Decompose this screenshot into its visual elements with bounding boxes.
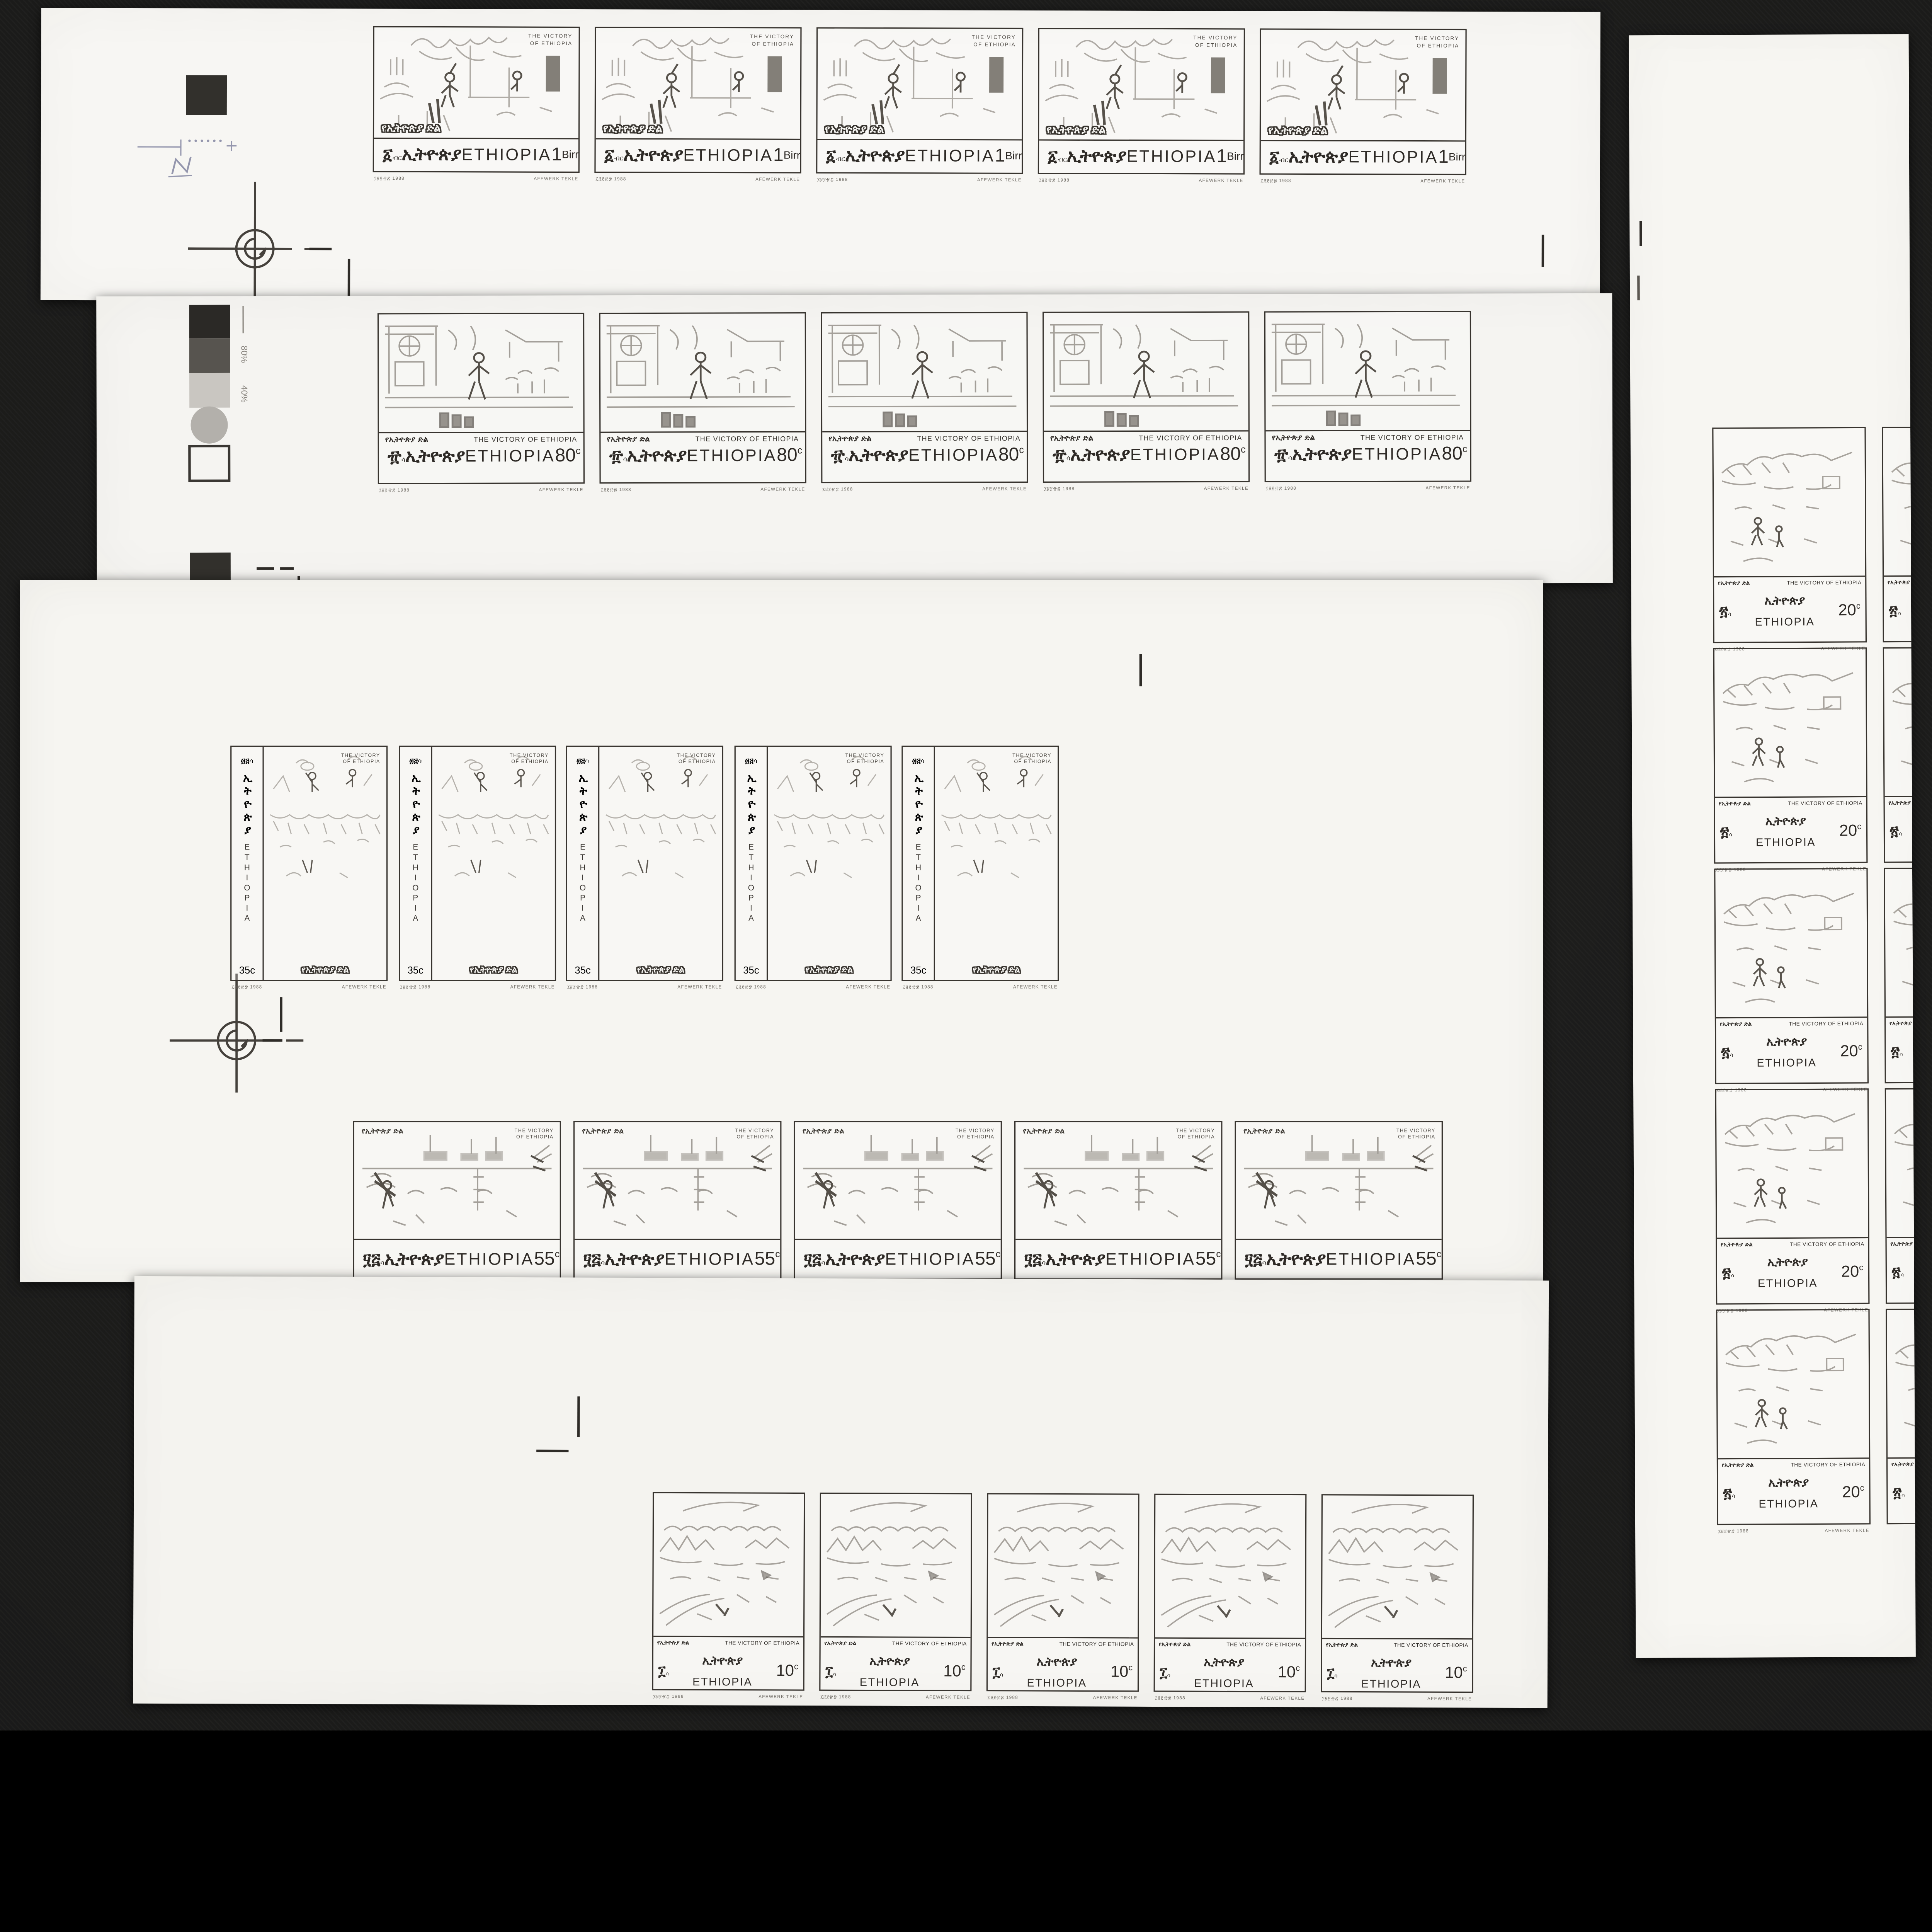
am-unit: ብር: [1058, 157, 1067, 164]
denomination-line: ፲ሳኢትዮጵያETHIOPIA10c: [653, 1648, 803, 1692]
title-en-line1: THE VICTORY: [1415, 35, 1459, 41]
stamp-title-en: THE VICTORYOF ETHIOPIA: [1193, 34, 1238, 49]
country-english: ETHIOPIA: [461, 145, 551, 164]
stamp-title-en: THE VICTORYOF ETHIOPIA: [1396, 1127, 1435, 1140]
band-title-line: የኢትዮጵያ ድልTHE VICTORY OF ETHIOPIA: [1884, 576, 1916, 588]
denomination-value: 10c: [1278, 1663, 1300, 1682]
imprint-date: ፲፱፻፹፰ 1988: [595, 177, 626, 182]
country-english: ETHIOPIA: [1027, 1676, 1087, 1689]
country-amharic: ኢትዮጵያ: [624, 146, 684, 166]
denomination-amharic: ፹ሳ: [609, 445, 627, 468]
imprint-designer: AFEWERK TEKLE: [926, 1695, 970, 1700]
value-unit: Birr: [784, 149, 800, 161]
imprint-designer: AFEWERK TEKLE: [1420, 179, 1465, 184]
denomination-value: 1Birr: [1216, 146, 1243, 167]
proof-sheet-10c: የኢትዮጵያ ድልTHE VICTORY OF ETHIOPIA፲ሳኢትዮጵያE…: [133, 1276, 1549, 1708]
value-unit: c: [555, 1249, 560, 1260]
stamp-artwork-sketch: [600, 313, 805, 433]
stamp-denomination-band: ፩ብርኢትዮጵያETHIOPIA1Birr: [374, 138, 578, 172]
stamp-denomination-band: የኢትዮጵያ ድልTHE VICTORY OF ETHIOPIA፹ሳኢትዮጵያE…: [600, 431, 805, 483]
denomination-value: 80c: [998, 444, 1024, 466]
value-number: 10: [776, 1661, 794, 1680]
country-english: ETHIOPIA: [687, 446, 777, 465]
stamp-artwork-sketch: [1155, 1495, 1305, 1639]
value-unit: c: [798, 445, 803, 456]
denomination-line: ፹ሳኢትዮጵያETHIOPIA80c: [822, 444, 1027, 467]
stamp-birr1: THE VICTORYOF ETHIOPIAየኢትዮጵያ ድል፩ብርኢትዮጵያE…: [594, 27, 801, 174]
imprint-designer: AFEWERK TEKLE: [755, 177, 800, 182]
imprint-row: ፲፱፻፹፰ 1988AFEWERK TEKLE: [1044, 486, 1248, 491]
am-numeral: ፶፭: [363, 1251, 380, 1270]
value-unit: c: [1437, 1249, 1442, 1260]
stamp-title-amharic: የኢትዮጵያ ድል: [803, 1127, 844, 1137]
denomination-amharic: ፲ሳ: [825, 1660, 836, 1682]
denomination-value: 55c: [975, 1249, 1000, 1270]
title-en-line2: OF ETHIOPIA: [530, 40, 573, 46]
am-numeral: ፹: [1053, 447, 1066, 465]
denomination-line: ፩ብርኢትዮጵያETHIOPIA1Birr: [817, 140, 1022, 173]
value-number: 55: [1416, 1249, 1436, 1270]
am-unit: ሳ: [665, 1672, 669, 1678]
stamp-c20: የኢትዮጵያ ድልTHE VICTORY OF ETHIOPIA፳ሳኢትዮጵያE…: [1882, 426, 1916, 642]
title-en-line1: THE VICTORY: [956, 1127, 995, 1134]
value-unit: c: [996, 1249, 1001, 1260]
imprint-row: ፲፱፻፹፰ 1988AFEWERK TEKLE: [1266, 485, 1470, 491]
imprint-date: ፲፱፻፹፰ 1988: [820, 1694, 851, 1699]
country-english: ETHIOPIA: [885, 1250, 975, 1268]
imprint-date: ፲፱፻፹፰ 1988: [1155, 1695, 1185, 1701]
title-en-line1: THE VICTORY: [1193, 34, 1237, 41]
stamp-title-en: THE VICTORYOF ETHIOPIA: [1415, 35, 1459, 49]
imprint-date: ፲፱፻፹፰ 1988: [817, 177, 848, 182]
imprint-designer: AFEWERK TEKLE: [759, 1694, 803, 1699]
denomination-amharic: ፩ብር: [383, 139, 402, 171]
imprint-row: ፲፱፻፹፰ 1988AFEWERK TEKLE: [595, 177, 800, 182]
imprint-designer: AFEWERK TEKLE: [1426, 485, 1470, 490]
value-number: 80: [1442, 443, 1463, 465]
denomination-amharic: ፶፭ሳ: [583, 1240, 605, 1278]
country-english: ETHIOPIA: [860, 1676, 920, 1689]
country-amharic: ኢትዮጵያ: [405, 447, 465, 467]
stamp-c80: የኢትዮጵያ ድልTHE VICTORY OF ETHIOPIA፹ሳኢትዮጵያE…: [599, 312, 806, 483]
proof-sheet-80c: 80% 40% የኢትዮጵያ ድልTHE VICTORY OF ETHIOPIA…: [96, 293, 1613, 586]
am-unit: ሳ: [1262, 1260, 1266, 1267]
denomination-amharic: ፹ሳ: [1053, 444, 1070, 466]
denomination-line: ፶፭ሳኢትዮጵያETHIOPIA55c: [1236, 1240, 1442, 1278]
stamp-c20: የኢትዮጵያ ድልTHE VICTORY OF ETHIOPIA፳ሳኢትዮጵያE…: [1883, 647, 1916, 863]
am-unit: ሳ: [1042, 1260, 1046, 1267]
stamp-denomination-band: የኢትዮጵያ ድልTHE VICTORY OF ETHIOPIA፲ሳኢትዮጵያE…: [1155, 1638, 1305, 1691]
title-en-line1: THE VICTORY: [528, 33, 572, 39]
denomination-amharic: ፳ሳ: [1892, 1260, 1904, 1283]
stamp-c55: የኢትዮጵያ ድልTHE VICTORYOF ETHIOPIA፶፭ሳኢትዮጵያE…: [1014, 1121, 1222, 1280]
value-unit: c: [794, 1663, 798, 1672]
stamp-row-10c: የኢትዮጵያ ድልTHE VICTORY OF ETHIOPIA፲ሳኢትዮጵያE…: [133, 1276, 1549, 1708]
stamp-c55: የኢትዮጵያ ድልTHE VICTORYOF ETHIOPIA፶፭ሳኢትዮጵያE…: [794, 1121, 1002, 1280]
stamp-art-area: [1265, 312, 1470, 432]
stamp-denomination-band: የኢትዮጵያ ድልTHE VICTORY OF ETHIOPIA፳ሳኢትዮጵያE…: [1888, 1457, 1916, 1523]
denomination-line: ፩ብርኢትዮጵያETHIOPIA1Birr: [596, 140, 800, 172]
am-numeral: ፲: [993, 1664, 1000, 1680]
denomination-amharic: ፶፭ሳ: [1024, 1240, 1046, 1278]
denomination-line: ፲ሳኢትዮጵያETHIOPIA10c: [820, 1649, 970, 1692]
stamp-birr1: THE VICTORYOF ETHIOPIAየኢትዮጵያ ድል፩ብርኢትዮጵያE…: [373, 26, 580, 173]
country-amharic: ኢትዮጵያ: [1037, 1656, 1077, 1670]
country-english: ETHIOPIA: [1352, 445, 1442, 464]
stamp-c80: የኢትዮጵያ ድልTHE VICTORY OF ETHIOPIA፹ሳኢትዮጵያE…: [1264, 311, 1471, 482]
band-title-line: የኢትዮጵያ ድልTHE VICTORY OF ETHIOPIA: [1266, 431, 1470, 444]
country-amharic: ኢትዮጵያ: [627, 446, 687, 466]
am-unit: ሳ: [845, 456, 849, 463]
denomination-line: ፳ሳኢትዮጵያETHIOPIA20c: [1885, 808, 1916, 851]
am-unit: ሳ: [1334, 1673, 1338, 1680]
stamp-title-amharic: የኢትዮጵያ ድል: [1326, 1642, 1358, 1649]
stamp-artwork-sketch: [1044, 313, 1248, 432]
stamp-denomination-band: ፶፭ሳኢትዮጵያETHIOPIA55c: [1236, 1239, 1442, 1278]
band-title-line: የኢትዮጵያ ድልTHE VICTORY OF ETHIOPIA: [1886, 1017, 1916, 1029]
country-stack: ኢትዮጵያETHIOPIA: [1027, 1651, 1087, 1692]
imprint-designer: AFEWERK TEKLE: [1260, 1696, 1304, 1701]
denomination-value: 80c: [1220, 444, 1246, 465]
imprint-date: ፲፱፻፹፰ 1988: [1039, 178, 1070, 183]
denomination-amharic: ፶፭ሳ: [1245, 1240, 1266, 1278]
country-english: ETHIOPIA: [905, 146, 995, 165]
stamp-title-en: THE VICTORYOF ETHIOPIA: [972, 34, 1016, 48]
country-english: ETHIOPIA: [665, 1250, 755, 1268]
stamp-title-amharic-bubble: የኢትዮጵያ ድል: [381, 123, 440, 135]
stamp-denomination-band: የኢትዮጵያ ድልTHE VICTORY OF ETHIOPIA፳ሳኢትዮጵያE…: [1884, 575, 1916, 641]
stamp-art-area: የኢትዮጵያ ድልTHE VICTORYOF ETHIOPIA: [354, 1122, 560, 1240]
value-number: 55: [755, 1249, 775, 1270]
country-amharic: ኢትዮጵያ: [849, 446, 908, 466]
imprint-date: ፲፱፻፹፰ 1988: [653, 1694, 684, 1699]
denomination-line: ፩ብርኢትዮጵያETHIOPIA1Birr: [374, 139, 578, 172]
stamp-denomination-band: ፩ብርኢትዮጵያETHIOPIA1Birr: [596, 138, 800, 172]
country-amharic: ኢትዮጵያ: [825, 1250, 885, 1270]
title-en-line1: THE VICTORY: [750, 33, 794, 39]
denomination-line: ፹ሳኢትዮጵያETHIOPIA80c: [601, 445, 805, 468]
stamp-column-20c-partial: የኢትዮጵያ ድልTHE VICTORY OF ETHIOPIA፳ሳኢትዮጵያE…: [1629, 34, 1916, 1658]
stamp-artwork-sketch: [1883, 427, 1915, 577]
am-numeral: ፶፭: [1245, 1251, 1262, 1270]
country-english: ETHIOPIA: [1127, 147, 1217, 166]
value-unit: c: [1296, 1665, 1300, 1673]
proof-sheet-1birr: THE VICTORYOF ETHIOPIAየኢትዮጵያ ድል፩ብርኢትዮጵያE…: [41, 8, 1600, 304]
denomination-line: ፳ሳኢትዮጵያETHIOPIA20c: [1887, 1249, 1916, 1292]
value-number: 1: [773, 145, 784, 166]
band-title-line: የኢትዮጵያ ድልTHE VICTORY OF ETHIOPIA: [1155, 1639, 1305, 1650]
stamp-c20: የኢትዮጵያ ድልTHE VICTORY OF ETHIOPIA፳ሳኢትዮጵያE…: [1886, 1308, 1916, 1524]
stamp-title-english: THE VICTORY OF ETHIOPIA: [892, 1640, 967, 1647]
title-en-line1: THE VICTORY: [1176, 1127, 1215, 1134]
denomination-amharic: ፶፭ሳ: [363, 1240, 384, 1278]
stamp-c55: የኢትዮጵያ ድልTHE VICTORYOF ETHIOPIA፶፭ሳኢትዮጵያE…: [573, 1121, 781, 1280]
imprint-row: ፲፱፻፹፰ 1988AFEWERK TEKLE: [1039, 178, 1243, 183]
stamp-artwork-sketch: [1885, 868, 1915, 1018]
band-title-line: የኢትዮጵያ ድልTHE VICTORY OF ETHIOPIA: [1044, 431, 1248, 444]
am-numeral: ፳: [1890, 823, 1899, 839]
title-en-line1: THE VICTORY: [1396, 1127, 1435, 1134]
imprint-date: ፲፱፻፹፰ 1988: [1044, 486, 1075, 491]
imprint-designer: AFEWERK TEKLE: [977, 177, 1022, 182]
stamp-artwork-sketch: [653, 1493, 804, 1638]
stamp-c20: የኢትዮጵያ ድልTHE VICTORY OF ETHIOPIA፳ሳኢትዮጵያE…: [1885, 1088, 1916, 1304]
stamp-title-english: THE VICTORY OF ETHIOPIA: [1139, 435, 1242, 443]
stamp-title-english: THE VICTORY OF ETHIOPIA: [1361, 435, 1464, 443]
stamp-denomination-band: የኢትዮጵያ ድልTHE VICTORY OF ETHIOPIA፳ሳኢትዮጵያE…: [1886, 1016, 1916, 1082]
stamp-denomination-band: የኢትዮጵያ ድልTHE VICTORY OF ETHIOPIA፲ሳኢትዮጵያE…: [988, 1637, 1138, 1690]
stamp-title-amharic: የኢትዮጵያ ድል: [1050, 434, 1093, 444]
value-number: 10: [1111, 1662, 1129, 1681]
title-en-line2: OF ETHIOPIA: [516, 1134, 554, 1140]
denomination-value: 1Birr: [995, 145, 1022, 167]
stamp-art-area: [822, 313, 1027, 432]
am-unit: ሳ: [1901, 1273, 1904, 1279]
stamp-title-english: THE VICTORY OF ETHIOPIA: [1060, 1641, 1134, 1647]
stamp-artwork-sketch: [821, 1494, 971, 1638]
denomination-line: ፳ሳኢትዮጵያETHIOPIA20c: [1886, 1028, 1916, 1072]
imprint-row: ፲፱፻፹፰ 1988AFEWERK TEKLE: [653, 1694, 803, 1699]
denomination-amharic: ፳ሳ: [1893, 1481, 1905, 1503]
stamp-title-amharic: የኢትዮጵያ ድል: [385, 436, 428, 446]
country-amharic: ኢትዮጵያ: [1289, 147, 1349, 167]
value-number: 1: [1438, 146, 1449, 168]
am-unit: ሳ: [1901, 1493, 1905, 1499]
stamp-art-area: [653, 1493, 804, 1638]
title-en-line1: THE VICTORY: [735, 1127, 774, 1134]
denomination-amharic: ፩ብር: [1269, 141, 1289, 173]
imprint-date: ፲፱፻፹፰ 1988: [374, 176, 405, 181]
stamp-title-amharic: የኢትዮጵያ ድል: [582, 1127, 624, 1137]
stamp-title-english: THE VICTORY OF ETHIOPIA: [725, 1640, 799, 1646]
stamp-denomination-band: ፩ብርኢትዮጵያETHIOPIA1Birr: [1039, 139, 1243, 173]
am-unit: ሳ: [1066, 455, 1070, 463]
country-amharic: ኢትዮጵያ: [1070, 445, 1130, 465]
stamp-title-en: THE VICTORYOF ETHIOPIA: [956, 1127, 995, 1140]
stamp-title-amharic: የኢትዮጵያ ድል: [1890, 1241, 1916, 1248]
value-number: 55: [975, 1249, 995, 1270]
denomination-amharic: ፹ሳ: [1274, 444, 1292, 466]
stamp-title-english: THE VICTORY OF ETHIOPIA: [474, 437, 577, 444]
denomination-line: ፶፭ሳኢትዮጵያETHIOPIA55c: [1015, 1240, 1221, 1278]
stamp-c10: የኢትዮጵያ ድልTHE VICTORY OF ETHIOPIA፲ሳኢትዮጵያE…: [652, 1492, 805, 1691]
am-numeral: ፶፭: [1024, 1251, 1042, 1270]
value-unit: Birr: [1005, 150, 1022, 162]
denomination-amharic: ፳ሳ: [1889, 599, 1901, 621]
denomination-amharic: ፲ሳ: [993, 1660, 1003, 1682]
imprint-row: ፲፱፻፹፰ 1988AFEWERK TEKLE: [1155, 1695, 1305, 1701]
stamp-denomination-band: ፩ብርኢትዮጵያETHIOPIA1Birr: [1261, 140, 1465, 174]
title-en-line2: OF ETHIOPIA: [1195, 41, 1238, 48]
stamp-denomination-band: የኢትዮጵያ ድልTHE VICTORY OF ETHIOPIA፳ሳኢትዮጵያE…: [1887, 1236, 1916, 1303]
denomination-value: 1Birr: [1438, 146, 1465, 168]
band-title-line: የኢትዮጵያ ድልTHE VICTORY OF ETHIOPIA: [1888, 1458, 1916, 1470]
proof-sheet-35c-55c: ፴፭ሳኢትዮጵያETHIOPIA35cTHE VICTORYOF ETHIOPI…: [20, 580, 1543, 1282]
imprint-date: ፲፱፻፹፰ 1988: [1322, 1696, 1352, 1701]
stamp-art-area: [1155, 1495, 1305, 1639]
stamp-c10: የኢትዮጵያ ድልTHE VICTORY OF ETHIOPIA፲ሳኢትዮጵያE…: [819, 1493, 972, 1691]
stamp-birr1: THE VICTORYOF ETHIOPIAየኢትዮጵያ ድል፩ብርኢትዮጵያE…: [1259, 28, 1466, 175]
am-unit: ሳ: [601, 1260, 605, 1267]
stamp-denomination-band: ፶፭ሳኢትዮጵያETHIOPIA55c: [575, 1239, 780, 1278]
denomination-value: 80c: [777, 445, 802, 466]
am-unit: ሳ: [380, 1260, 384, 1267]
stamp-title-amharic-bubble: የኢትዮጵያ ድል: [825, 124, 884, 136]
country-stack: ኢትዮጵያETHIOPIA: [1361, 1651, 1422, 1693]
denomination-line: ፹ሳኢትዮጵያETHIOPIA80c: [379, 445, 583, 468]
value-number: 10: [1278, 1663, 1296, 1682]
stamp-art-area: [1322, 1495, 1473, 1639]
imprint-row: ፲፱፻፹፰ 1988AFEWERK TEKLE: [1261, 178, 1465, 184]
stamp-denomination-band: የኢትዮጵያ ድልTHE VICTORY OF ETHIOPIA፲ሳኢትዮጵያE…: [653, 1636, 803, 1689]
value-unit: Birr: [562, 148, 578, 161]
stamp-title-english: THE VICTORY OF ETHIOPIA: [696, 436, 799, 444]
denomination-amharic: ፲ሳ: [658, 1659, 669, 1682]
value-unit: c: [1216, 1249, 1221, 1260]
imprint-row: ፲፱፻፹፰ 1988AFEWERK TEKLE: [817, 177, 1022, 182]
denomination-line: ፲ሳኢትዮጵያETHIOPIA10c: [1155, 1650, 1305, 1693]
imprint-designer: AFEWERK TEKLE: [760, 487, 805, 492]
stamp-art-area: [1884, 648, 1916, 797]
title-en-line2: OF ETHIOPIA: [752, 40, 794, 46]
country-amharic: ኢትዮጵያ: [402, 145, 462, 165]
country-english: ETHIOPIA: [692, 1675, 752, 1688]
stamp-title-amharic-bubble: የኢትዮጵያ ድል: [603, 123, 662, 136]
denomination-amharic: ፩ብር: [1048, 141, 1067, 173]
country-amharic: ኢትዮጵያ: [384, 1250, 444, 1270]
am-numeral: ፩: [1269, 148, 1279, 167]
imprint-date: ፲፱፻፹፰ 1988: [822, 487, 853, 492]
stamp-c80: የኢትዮጵያ ድልTHE VICTORY OF ETHIOPIA፹ሳኢትዮጵያE…: [821, 312, 1028, 483]
stamp-denomination-band: ፶፭ሳኢትዮጵያETHIOPIA55c: [354, 1239, 560, 1278]
imprint-date: ፲፱፻፹፰ 1988: [1266, 486, 1296, 491]
dark-fabric-background: THE VICTORYOF ETHIOPIAየኢትዮጵያ ድል፩ብርኢትዮጵያE…: [0, 0, 1932, 1731]
stamp-birr1: THE VICTORYOF ETHIOPIAየኢትዮጵያ ድል፩ብርኢትዮጵያE…: [1038, 28, 1245, 175]
am-numeral: ፳: [1892, 1264, 1901, 1280]
stamp-title-english: THE VICTORY OF ETHIOPIA: [917, 436, 1020, 443]
stamp-row-1birr: THE VICTORYOF ETHIOPIAየኢትዮጵያ ድል፩ብርኢትዮጵያE…: [41, 8, 1600, 304]
denomination-value: 10c: [943, 1662, 965, 1680]
stamp-denomination-band: ፶፭ሳኢትዮጵያETHIOPIA55c: [795, 1239, 1001, 1278]
value-number: 80: [998, 444, 1019, 466]
denomination-value: 1Birr: [551, 144, 578, 165]
value-unit: c: [961, 1664, 966, 1672]
country-stack: ኢትዮጵያETHIOPIA: [692, 1649, 753, 1691]
stamp-title-english: THE VICTORY OF ETHIOPIA: [1226, 1641, 1301, 1648]
stamp-denomination-band: የኢትዮጵያ ድልTHE VICTORY OF ETHIOPIA፲ሳኢትዮጵያE…: [820, 1636, 970, 1690]
stamp-denomination-band: የኢትዮጵያ ድልTHE VICTORY OF ETHIOPIA፹ሳኢትዮጵያE…: [379, 432, 583, 483]
stamp-artwork-sketch: [1887, 1309, 1915, 1459]
am-unit: ሳ: [833, 1672, 836, 1678]
value-number: 80: [1220, 444, 1241, 465]
am-numeral: ፹: [609, 448, 623, 466]
stamp-artwork-sketch: [822, 313, 1027, 432]
stamp-title-en: THE VICTORYOF ETHIOPIA: [750, 33, 794, 48]
imprint-row: ፲፱፻፹፰ 1988AFEWERK TEKLE: [374, 176, 578, 181]
stamp-row-80c: የኢትዮጵያ ድልTHE VICTORY OF ETHIOPIA፹ሳኢትዮጵያE…: [96, 293, 1613, 586]
denomination-amharic: ፩ብር: [826, 140, 845, 172]
denomination-line: ፹ሳኢትዮጵያETHIOPIA80c: [1044, 444, 1248, 467]
stamp-row-55c: የኢትዮጵያ ድልTHE VICTORYOF ETHIOPIA፶፭ሳኢትዮጵያE…: [20, 580, 1543, 1282]
am-unit: ብር: [1279, 157, 1289, 165]
stamp-title-english: THE VICTORY OF ETHIOPIA: [1394, 1642, 1468, 1648]
denomination-amharic: ፳ሳ: [1891, 1040, 1903, 1062]
stamp-title-amharic-bubble: የኢትዮጵያ ድል: [1268, 125, 1327, 138]
denomination-line: ፩ብርኢትዮጵያETHIOPIA1Birr: [1261, 141, 1465, 174]
value-unit: c: [1128, 1665, 1133, 1673]
stamp-art-area: [988, 1495, 1138, 1639]
am-numeral: ፹: [831, 447, 845, 466]
denomination-value: 10c: [776, 1661, 798, 1680]
am-numeral: ፩: [604, 147, 614, 165]
stamp-c20: የኢትዮጵያ ድልTHE VICTORY OF ETHIOPIA፳ሳኢትዮጵያE…: [1884, 867, 1916, 1083]
stamp-denomination-band: የኢትዮጵያ ድልTHE VICTORY OF ETHIOPIA፹ሳኢትዮጵያE…: [822, 431, 1027, 482]
country-stack: ኢትዮጵያETHIOPIA: [860, 1650, 920, 1692]
stamp-art-area: [821, 1494, 971, 1638]
imprint-date: ፲፱፻፹፰ 1988: [379, 488, 410, 493]
stamp-art-area: [1887, 1309, 1915, 1459]
denomination-value: 55c: [534, 1249, 560, 1270]
am-unit: ብር: [836, 156, 845, 163]
stamp-art-area: [600, 313, 805, 433]
am-numeral: ፲: [1327, 1665, 1334, 1681]
country-amharic: ኢትዮጵያ: [1292, 445, 1352, 465]
stamp-denomination-band: የኢትዮጵያ ድልTHE VICTORY OF ETHIOPIA፲ሳኢትዮጵያE…: [1322, 1638, 1472, 1692]
stamp-title-amharic: የኢትዮጵያ ድል: [1243, 1127, 1285, 1137]
value-unit: c: [1463, 443, 1468, 454]
stamp-art-area: የኢትዮጵያ ድልTHE VICTORYOF ETHIOPIA: [1236, 1122, 1442, 1240]
country-amharic: ኢትዮጵያ: [869, 1655, 910, 1669]
title-en-line2: OF ETHIOPIA: [957, 1134, 995, 1140]
stamp-title-amharic: የኢትዮጵያ ድል: [1272, 434, 1315, 444]
imprint-date: ፲፱፻፹፰ 1988: [988, 1695, 1018, 1700]
value-number: 55: [534, 1249, 554, 1270]
imprint-date: ፲፱፻፹፰ 1988: [601, 487, 631, 492]
stamp-title-amharic: የኢትዮጵያ ድል: [1888, 800, 1916, 807]
title-en-line2: OF ETHIOPIA: [737, 1134, 774, 1140]
country-english: ETHIOPIA: [444, 1250, 534, 1268]
band-title-line: የኢትዮጵያ ድልTHE VICTORY OF ETHIOPIA: [653, 1637, 803, 1649]
am-unit: ሳ: [1899, 832, 1902, 838]
stamp-title-amharic: የኢትዮጵያ ድል: [992, 1641, 1024, 1648]
stamp-title-en: THE VICTORYOF ETHIOPIA: [515, 1127, 554, 1140]
photograph-stamp-proof-sheets: THE VICTORYOF ETHIOPIAየኢትዮጵያ ድል፩ብርኢትዮጵያE…: [0, 0, 1932, 1731]
value-number: 55: [1196, 1249, 1216, 1270]
stamp-art-area: [1883, 427, 1915, 577]
imprint-date: ፲፱፻፹፰ 1988: [1261, 178, 1291, 183]
band-title-line: የኢትዮጵያ ድልTHE VICTORY OF ETHIOPIA: [1885, 797, 1916, 809]
am-numeral: ፲: [825, 1663, 833, 1680]
denomination-line: ፶፭ሳኢትዮጵያETHIOPIA55c: [575, 1240, 780, 1278]
value-number: 10: [943, 1662, 961, 1680]
denomination-amharic: ፳ሳ: [1890, 819, 1902, 842]
value-number: 80: [777, 445, 798, 466]
imprint-row: ፲፱፻፹፰ 1988AFEWERK TEKLE: [822, 487, 1027, 492]
am-numeral: ፳: [1893, 1484, 1901, 1501]
band-title-line: የኢትዮጵያ ድልTHE VICTORY OF ETHIOPIA: [1322, 1639, 1472, 1651]
country-amharic: ኢትዮጵያ: [1371, 1656, 1412, 1670]
imprint-row: ፲፱፻፹፰ 1988AFEWERK TEKLE: [820, 1694, 970, 1700]
title-en-line2: OF ETHIOPIA: [973, 41, 1016, 47]
stamp-art-area: THE VICTORYOF ETHIOPIAየኢትዮጵያ ድል: [596, 28, 801, 140]
denomination-line: ፲ሳኢትዮጵያETHIOPIA10c: [988, 1649, 1138, 1692]
denomination-value: 55c: [1416, 1249, 1441, 1270]
stamp-birr1: THE VICTORYOF ETHIOPIAየኢትዮጵያ ድል፩ብርኢትዮጵያE…: [816, 27, 1023, 174]
imprint-designer: AFEWERK TEKLE: [539, 487, 583, 492]
stamp-art-area: THE VICTORYOF ETHIOPIAየኢትዮጵያ ድል: [1261, 30, 1466, 142]
stamp-c55: የኢትዮጵያ ድልTHE VICTORYOF ETHIOPIA፶፭ሳኢትዮጵያE…: [1235, 1121, 1443, 1280]
stamp-art-area: THE VICTORYOF ETHIOPIAየኢትዮጵያ ድል: [374, 27, 579, 140]
